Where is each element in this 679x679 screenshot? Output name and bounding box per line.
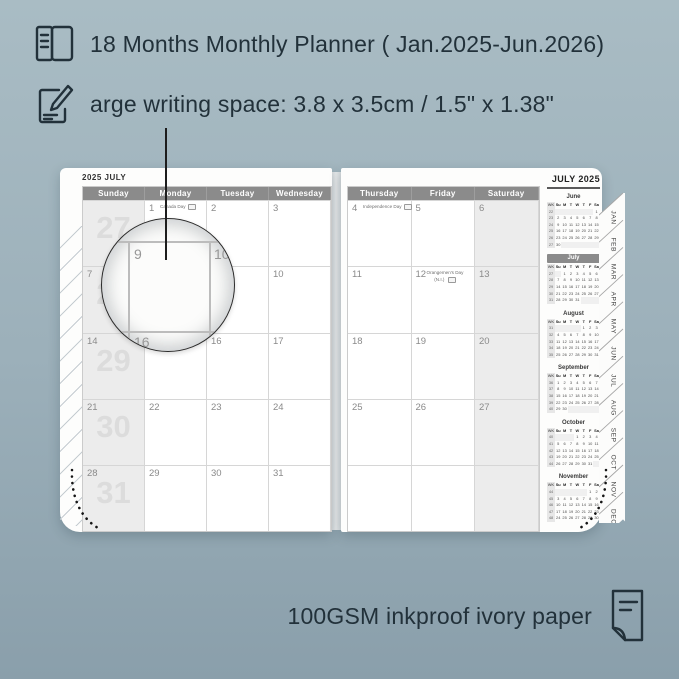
calendar-cell: 5	[412, 200, 476, 266]
calendar-cell-sunday: 2130	[83, 399, 145, 465]
day-header: Tuesday	[207, 187, 269, 200]
left-page-title: 2025 JULY	[82, 173, 126, 182]
svg-text:JAN: JAN	[610, 211, 617, 225]
calendar-cell: 26	[412, 399, 476, 465]
svg-text:AUG: AUG	[610, 400, 617, 416]
magnifier-circle: 9 10 16	[101, 218, 235, 352]
feature-planner-range: 18 Months Monthly Planner ( Jan.2025-Jun…	[33, 24, 604, 64]
calendar-cell: 11	[348, 266, 412, 332]
calendar-cell-saturday: 27	[475, 399, 539, 465]
calendar-cell: 18	[348, 333, 412, 399]
calendar-cell: 10	[269, 266, 331, 332]
corner-arc-right	[570, 466, 622, 538]
holiday-flag-icon	[448, 277, 456, 283]
magnified-grid-line	[102, 241, 234, 243]
calendar-cell-saturday	[475, 465, 539, 531]
calendar-cell: 19	[412, 333, 476, 399]
holiday-flag-icon	[188, 204, 196, 210]
mini-month-grid: WKSuMTWTFSa27123456287891011121329141516…	[547, 264, 600, 304]
magnified-grid-line	[116, 331, 234, 333]
mini-month-name: July	[547, 254, 600, 263]
mini-month-name: October	[547, 419, 600, 427]
right-calendar-grid: ThursdayFridaySaturday4Independence Day5…	[347, 186, 540, 532]
feature-planner-range-text: 18 Months Monthly Planner ( Jan.2025-Jun…	[90, 31, 604, 58]
calendar-cell: 3	[269, 200, 331, 266]
holiday-flag-icon	[404, 204, 412, 210]
calendar-cell: 23	[207, 399, 269, 465]
calendar-cell: 16	[207, 333, 269, 399]
magnified-date-16: 16	[134, 334, 150, 350]
calendar-cell: 12Orangemen's Day(N.I.)	[412, 266, 476, 332]
mini-month-name: September	[547, 364, 600, 372]
paper-icon	[605, 588, 649, 644]
svg-text:MAY: MAY	[610, 319, 617, 334]
feature-writing-space-text: arge writing space: 3.8 x 3.5cm / 1.5" x…	[90, 91, 554, 118]
magnified-date-10: 10	[214, 246, 230, 262]
svg-text:JUN: JUN	[610, 346, 617, 360]
day-header: Wednesday	[269, 187, 331, 200]
day-header: Friday	[412, 187, 476, 200]
svg-text:FEB: FEB	[610, 238, 617, 252]
calendar-cell: 22	[145, 399, 207, 465]
day-header: Saturday	[475, 187, 539, 200]
mini-month-name: August	[547, 310, 600, 318]
right-page-title: JULY 2025	[547, 174, 600, 184]
calendar-cell: 31	[269, 465, 331, 531]
notebook-icon	[33, 24, 77, 64]
mini-month-grid: WKSuMTWTFSa40123441567891011421213141516…	[547, 428, 600, 468]
holiday-label: Orangemen's Day(N.I.)	[427, 270, 464, 283]
calendar-cell: 30	[207, 465, 269, 531]
day-header: Monday	[145, 187, 207, 200]
mini-month-grid: WKSuMTWTFSa36123456737891011121314381516…	[547, 373, 600, 413]
mini-month-june: JuneWKSuMTWTFSa2212323456782491011121314…	[547, 193, 600, 248]
calendar-cell: 25	[348, 399, 412, 465]
calendar-cell	[348, 465, 412, 531]
svg-text:APR: APR	[610, 292, 617, 307]
corner-arc-left	[56, 466, 108, 538]
calendar-cell-saturday: 13	[475, 266, 539, 332]
calendar-cell-saturday: 20	[475, 333, 539, 399]
week-number-watermark: 30	[83, 409, 144, 445]
mini-month-name: June	[547, 193, 600, 201]
planner-right-page: ThursdayFridaySaturday4Independence Day5…	[341, 168, 602, 532]
mini-month-july: JulyWKSuMTWTFSa2712345628789101112132914…	[547, 254, 600, 304]
mini-month-grid: WKSuMTWTFSa31123324567891033111213141516…	[547, 319, 600, 359]
calendar-cell: 24	[269, 399, 331, 465]
svg-text:SEP: SEP	[610, 428, 617, 443]
feature-paper-text: 100GSM inkproof ivory paper	[287, 603, 592, 630]
pencil-note-icon	[33, 82, 77, 126]
calendar-cell: 29	[145, 465, 207, 531]
calendar-cell	[412, 465, 476, 531]
magnified-grid-line	[128, 241, 130, 351]
mini-month-august: AugustWKSuMTWTFSa31123324567891033111213…	[547, 310, 600, 359]
sidebar-rule	[547, 187, 600, 189]
day-header: Sunday	[83, 187, 145, 200]
magnified-grid-line	[209, 241, 211, 351]
feature-writing-space: arge writing space: 3.8 x 3.5cm / 1.5" x…	[33, 82, 554, 126]
holiday-label: Independence Day	[363, 204, 412, 211]
mini-month-grid: WKSuMTWTFSa22123234567824910111213141525…	[547, 202, 600, 248]
svg-text:JUL: JUL	[610, 374, 617, 387]
mini-month-october: OctoberWKSuMTWTFSa4012344156789101142121…	[547, 419, 600, 468]
calendar-cell-saturday: 6	[475, 200, 539, 266]
mini-month-september: SeptemberWKSuMTWTFSa36123456737891011121…	[547, 364, 600, 413]
feature-paper: 100GSM inkproof ivory paper	[287, 588, 649, 644]
callout-line	[165, 128, 167, 260]
calendar-cell: 4Independence Day	[348, 200, 412, 266]
day-header: Thursday	[348, 187, 412, 200]
magnified-date-9: 9	[134, 246, 142, 262]
calendar-cell: 17	[269, 333, 331, 399]
svg-text:MAR: MAR	[610, 264, 617, 280]
